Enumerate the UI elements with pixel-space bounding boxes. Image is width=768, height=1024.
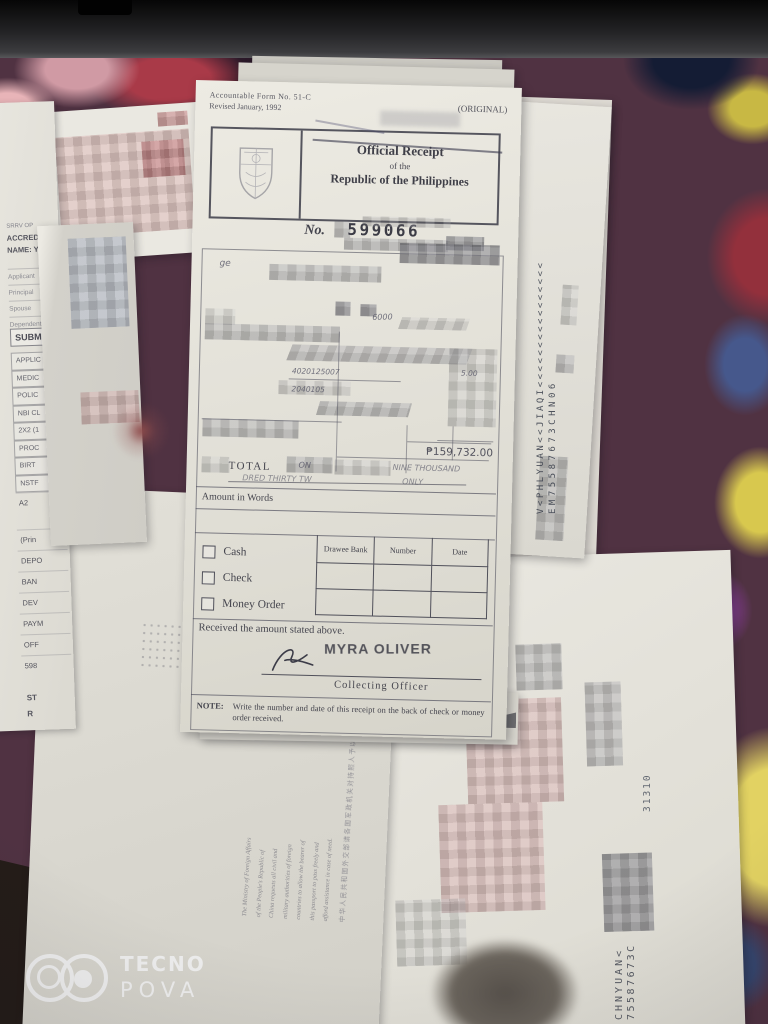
table-cell bbox=[430, 592, 488, 619]
redaction-mosaic bbox=[141, 139, 185, 178]
watermark-lens-dot-icon bbox=[74, 970, 92, 988]
original-copy-label: (ORIGINAL) bbox=[458, 103, 508, 114]
receipt-no-label: No. bbox=[304, 223, 325, 239]
check-details-table: Drawee Bank Number Date bbox=[315, 535, 489, 619]
table-cell bbox=[315, 589, 373, 616]
mrz-line: V<PHLYUAN<<JIAQI<<<<<<<<<<<<<<<< bbox=[536, 222, 546, 514]
total-label: TOTAL bbox=[228, 460, 271, 473]
table-cell bbox=[373, 564, 431, 591]
note-label: NOTE: bbox=[197, 700, 224, 711]
visa-mrz-vertical: V<PHLYUAN<<JIAQI<<<<<<<<<<<<<<<< EM75587… bbox=[536, 222, 562, 514]
redaction-mosaic bbox=[448, 348, 498, 427]
redaction-mosaic bbox=[362, 216, 450, 228]
paper-sheet-edge bbox=[37, 222, 147, 546]
payment-option-label: Cash bbox=[223, 546, 246, 559]
watermark-lens-inner-icon bbox=[37, 965, 61, 989]
form-footer-row: R bbox=[23, 705, 74, 723]
receipt-title-republic: Republic of the Philippines bbox=[301, 171, 497, 191]
redaction-mosaic bbox=[584, 681, 623, 766]
form-lower-row: PAYM bbox=[20, 612, 71, 635]
passport-serial-number: 31310 bbox=[642, 732, 653, 812]
payment-option-label: Check bbox=[223, 572, 253, 585]
redaction-mosaic bbox=[269, 264, 381, 283]
handwriting: 5.00 bbox=[461, 369, 478, 378]
form-footer-rows: STR bbox=[23, 689, 74, 723]
passport-mrz-vertical: CHNYUAN< 75587673C bbox=[614, 870, 642, 1020]
braille-dot-grid bbox=[139, 621, 186, 673]
watermark-text: TECNO POVA bbox=[120, 952, 206, 1002]
checkbox-icon bbox=[202, 545, 215, 558]
form-number-line: Accountable Form No. 51-C bbox=[210, 90, 312, 101]
redaction-mosaic bbox=[68, 236, 130, 328]
dark-object-edge bbox=[78, 0, 132, 15]
watermark-model: POVA bbox=[120, 978, 206, 1002]
redaction-mosaic bbox=[334, 460, 390, 476]
redaction-mosaic bbox=[316, 401, 412, 417]
redaction-mosaic bbox=[398, 317, 470, 331]
redaction-mosaic bbox=[335, 301, 350, 315]
redaction-mosaic bbox=[157, 111, 188, 127]
payment-option-row: Money Order bbox=[201, 590, 314, 619]
handwriting: 4020125007 bbox=[292, 366, 340, 376]
payment-option-row: Cash bbox=[202, 538, 315, 567]
handwriting: ge bbox=[219, 259, 230, 269]
form-lower-row: 598 bbox=[21, 654, 72, 677]
form-lower-row: DEPO bbox=[18, 549, 69, 572]
handwriting: 6000 bbox=[372, 312, 393, 322]
form-lower-row: DEV bbox=[19, 591, 70, 614]
form-lower-row: BAN bbox=[18, 570, 69, 593]
table-header-cell: Number bbox=[374, 536, 432, 565]
redaction-mosaic bbox=[515, 643, 562, 690]
payment-options: Cash Check Money Order bbox=[201, 538, 315, 619]
signature-squiggle bbox=[266, 640, 319, 677]
table-header-cell: Drawee Bank bbox=[316, 535, 374, 564]
amount-words-fragment: ONLY bbox=[402, 477, 423, 487]
watermark-brand: TECNO bbox=[120, 952, 206, 976]
form-lower-row: OFF bbox=[21, 633, 72, 656]
official-receipt: Accountable Form No. 51-C Revised Januar… bbox=[180, 80, 522, 740]
payment-option-label: Money Order bbox=[222, 598, 285, 612]
redaction-mosaic bbox=[400, 243, 500, 265]
mrz-line: 75587673C bbox=[626, 870, 637, 1020]
note-box: NOTE: Write the number and date of this … bbox=[190, 694, 491, 736]
mrz-line: EM75587673CHN06 bbox=[548, 222, 558, 514]
amount-words-fragment: NINE THOUSAND bbox=[392, 463, 460, 474]
mrz-line: CHNYUAN< bbox=[614, 870, 625, 1020]
table-cell bbox=[316, 563, 374, 590]
redaction-mosaic bbox=[438, 802, 545, 913]
handwriting: 2040105 bbox=[291, 384, 325, 394]
collecting-officer-name-stamp: MYRA OLIVER bbox=[324, 641, 432, 657]
redaction-mosaic bbox=[205, 323, 340, 342]
payment-option-row: Check bbox=[202, 564, 315, 593]
philippines-seal-icon bbox=[231, 142, 281, 205]
table-cell bbox=[430, 566, 488, 593]
seal-cell bbox=[211, 128, 303, 218]
photo-scene: CHNYUAN< 75587673C 31310 The Ministry of… bbox=[0, 0, 768, 1024]
redaction-mosaic bbox=[202, 418, 298, 438]
redaction-mosaic bbox=[560, 285, 578, 326]
form-revision-line: Revised January, 1992 bbox=[209, 101, 281, 112]
stamp-smudge bbox=[380, 111, 460, 128]
table-cell bbox=[372, 590, 430, 617]
note-text: Write the number and date of this receip… bbox=[232, 701, 484, 729]
camera-watermark: TECNO POVA bbox=[26, 950, 266, 1016]
form-footer-row: ST bbox=[23, 689, 74, 707]
checkbox-icon bbox=[202, 571, 215, 584]
amount-in-words-label: Amount in Words bbox=[202, 491, 273, 504]
amount-words-fragment: ON bbox=[299, 461, 311, 470]
redaction-mosaic bbox=[201, 456, 229, 473]
checkbox-icon bbox=[201, 597, 214, 610]
table-header-cell: Date bbox=[431, 538, 489, 567]
